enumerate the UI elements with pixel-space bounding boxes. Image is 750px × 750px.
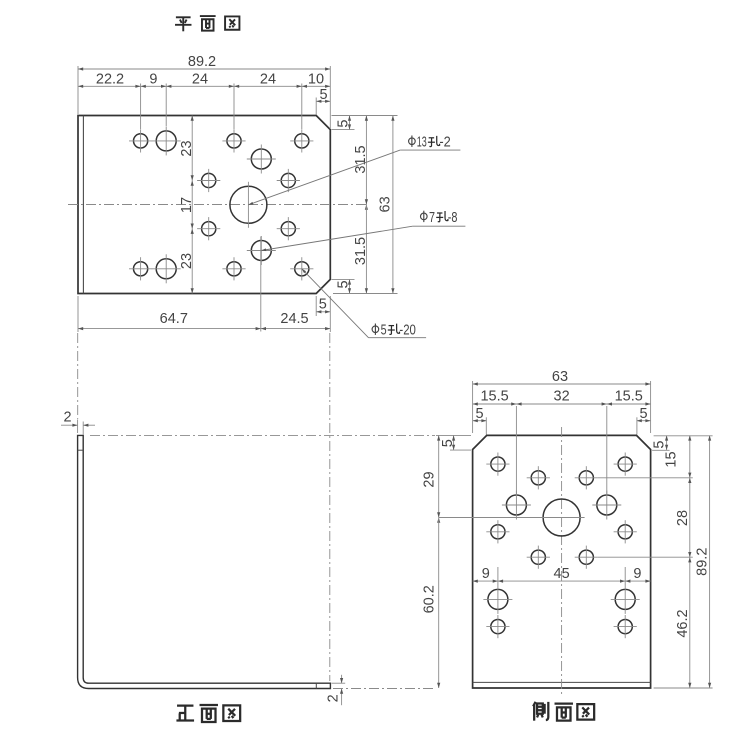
svg-text:-8: -8: [448, 210, 458, 226]
svg-text:5: 5: [336, 280, 352, 288]
svg-text:9: 9: [633, 566, 641, 582]
svg-text:10: 10: [308, 72, 324, 88]
svg-text:23: 23: [179, 253, 195, 269]
svg-text:28: 28: [675, 510, 691, 526]
svg-text:31.5: 31.5: [353, 237, 369, 265]
svg-text:9: 9: [149, 72, 157, 88]
svg-text:7: 7: [429, 210, 435, 226]
svg-text:63: 63: [377, 196, 393, 212]
svg-text:45: 45: [554, 566, 570, 582]
svg-text:31.5: 31.5: [353, 145, 369, 173]
svg-text:63: 63: [552, 369, 568, 385]
svg-text:9: 9: [482, 566, 490, 582]
svg-text:13: 13: [417, 135, 427, 151]
svg-text:29: 29: [422, 471, 438, 487]
svg-text:23: 23: [179, 140, 195, 156]
svg-text:15: 15: [664, 451, 680, 467]
svg-text:5: 5: [319, 296, 327, 312]
svg-text:22.2: 22.2: [96, 72, 124, 88]
svg-text:5: 5: [652, 441, 668, 449]
svg-text:5: 5: [640, 406, 648, 422]
svg-text:15.5: 15.5: [480, 388, 508, 404]
svg-text:64.7: 64.7: [160, 311, 188, 327]
svg-text:5: 5: [440, 439, 456, 447]
svg-text:5: 5: [475, 406, 483, 422]
svg-text:32: 32: [554, 388, 570, 404]
svg-text:5: 5: [381, 322, 387, 338]
svg-text:5: 5: [336, 120, 352, 128]
svg-text:-20: -20: [399, 322, 416, 338]
svg-text:60.2: 60.2: [422, 585, 438, 613]
svg-text:24: 24: [192, 72, 208, 88]
svg-text:-2: -2: [439, 135, 450, 151]
svg-text:24: 24: [260, 72, 276, 88]
svg-text:89.2: 89.2: [188, 54, 216, 70]
svg-text:17: 17: [179, 197, 195, 213]
svg-text:5: 5: [319, 87, 327, 103]
svg-text:2: 2: [326, 694, 342, 702]
svg-text:89.2: 89.2: [695, 548, 711, 576]
svg-text:46.2: 46.2: [675, 609, 691, 637]
svg-text:24.5: 24.5: [280, 311, 308, 327]
svg-text:2: 2: [63, 409, 71, 425]
svg-text:15.5: 15.5: [615, 388, 643, 404]
